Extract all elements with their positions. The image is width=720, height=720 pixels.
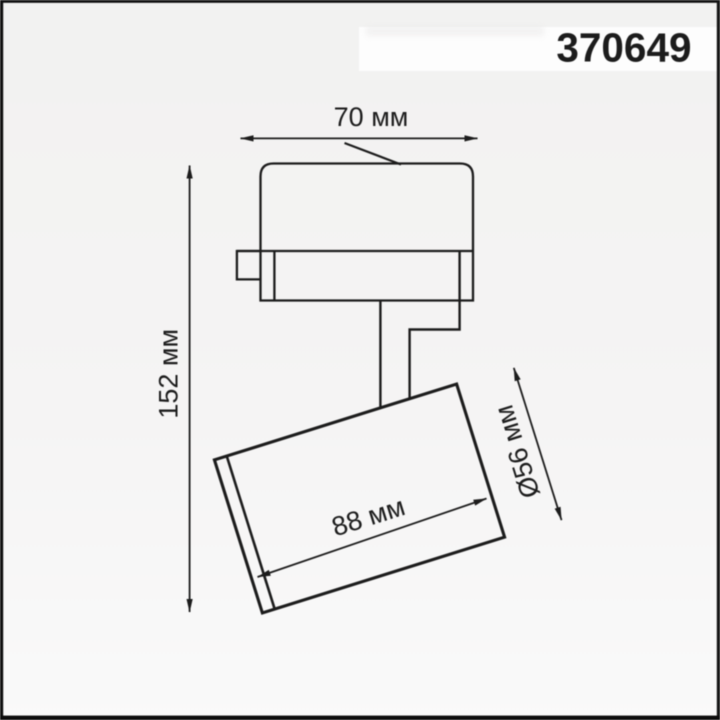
svg-text:152 мм: 152 мм bbox=[154, 329, 184, 419]
svg-text:70 мм: 70 мм bbox=[334, 102, 409, 132]
svg-text:370649: 370649 bbox=[556, 25, 691, 71]
